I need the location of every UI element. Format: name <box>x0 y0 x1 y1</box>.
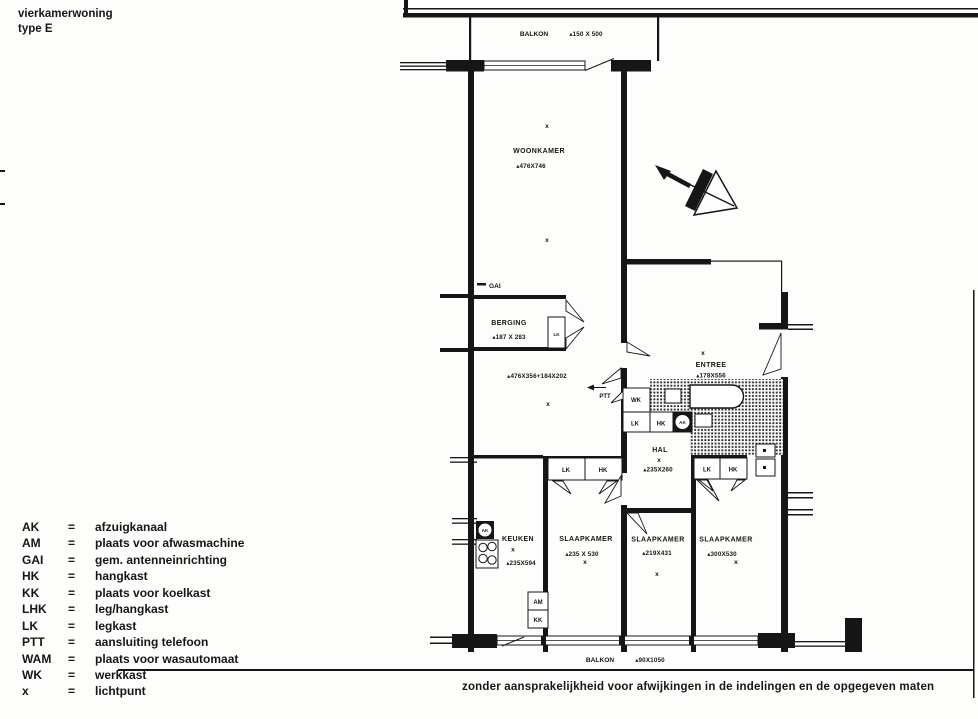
lightpoint-keuken: x <box>511 547 515 554</box>
label-ptt: PTT <box>599 394 611 400</box>
lightpoint-slaapkamer2: x <box>655 571 659 578</box>
door-entree-b <box>602 368 621 384</box>
label-slk1-lk: LK <box>562 468 571 474</box>
legend-abbr: WK <box>22 667 68 683</box>
legend-abbr: GAI <box>22 552 68 568</box>
dim-balkon-top: ▴150 X 500 <box>569 31 603 38</box>
label-hal-lk: LK <box>703 468 712 474</box>
label-am: AM <box>533 600 542 606</box>
door-berging-1 <box>566 300 584 322</box>
dim-berging: ▴187 X 283 <box>492 334 526 341</box>
legend-desc: leg/hangkast <box>95 601 168 617</box>
legend-desc: aansluiting telefoon <box>95 634 208 650</box>
label-entree: ENTREE <box>696 362 727 369</box>
dim-hal: ▴235X260 <box>643 467 673 474</box>
label-ak-bath: AK <box>679 420 686 425</box>
burner-icon <box>488 542 496 550</box>
legend-abbr: WAM <box>22 651 68 667</box>
legend-desc: afzuigkanaal <box>95 519 167 535</box>
door-hal-slaapkamer2 <box>627 513 647 534</box>
label-keuken: KEUKEN <box>502 536 534 543</box>
legend-abbr: AK <box>22 519 68 535</box>
label-berging: BERGING <box>491 320 527 327</box>
label-slaapkamer3: SLAAPKAMER <box>699 537 752 544</box>
balcony-door-leaf <box>585 59 614 71</box>
dim-keuken: ▴235X594 <box>506 560 536 567</box>
legend-desc: plaats voor afwasmachine <box>95 535 244 551</box>
legend-abbr: HK <box>22 568 68 584</box>
toilet <box>665 389 681 403</box>
dim-woonkamer: ▴476X746 <box>516 163 546 170</box>
legend-abbr: LHK <box>22 601 68 617</box>
label-ak-kitchen: AK <box>482 528 489 533</box>
legend-row: GAI=gem. antenneinrichting <box>22 552 244 568</box>
label-hal-hk: HK <box>729 468 738 474</box>
legend-desc: legkast <box>95 618 136 634</box>
equals-sign: = <box>68 667 95 683</box>
label-entree-lk: LK <box>631 422 640 428</box>
label-gai: GAI <box>489 283 501 290</box>
burner-icon <box>479 554 487 562</box>
lightpoint-slaapkamer1: x <box>583 559 587 566</box>
dim-balkon-bottom: ▴90X1050 <box>635 657 665 664</box>
ptt-arrow-icon <box>587 385 594 391</box>
lightpoint-woonkamer-1: x <box>545 123 549 130</box>
label-balkon-bottom: BALKON <box>586 657 614 664</box>
legend-row: WAM=plaats voor wasautomaat <box>22 651 244 667</box>
door-closet-slk1-a <box>553 481 571 494</box>
fixtures <box>476 415 690 569</box>
lightpoint-woonkamer-2: x <box>545 237 549 244</box>
equals-sign: = <box>68 585 95 601</box>
lightpoint-woonkamer-3: x <box>546 401 550 408</box>
label-balkon-top: BALKON <box>520 31 548 38</box>
burner-icon <box>488 556 496 564</box>
dim-slaapkamer1: ▴235 X 530 <box>565 551 599 558</box>
label-entree-hk: HK <box>657 422 666 428</box>
door-front-entrance <box>763 333 781 375</box>
legend-desc: hangkast <box>95 568 148 584</box>
dim-entree: ▴178X556 <box>696 373 726 380</box>
legend-abbr: KK <box>22 585 68 601</box>
label-slaapkamer2: SLAAPKAMER <box>631 537 684 544</box>
legend-row: AM=plaats voor afwasmachine <box>22 535 244 551</box>
equals-sign: = <box>68 618 95 634</box>
equals-sign: = <box>68 601 95 617</box>
washbasin <box>695 414 712 427</box>
lightpoint-slaapkamer3: x <box>734 559 738 566</box>
floorplan-page: vierkamerwoning type E <box>0 0 978 719</box>
dim-slaapkamer3: ▴300X530 <box>707 551 737 558</box>
label-kk: KK <box>534 618 543 624</box>
legend-row: HK=hangkast <box>22 568 244 584</box>
burner-icon <box>479 543 487 551</box>
equals-sign: = <box>68 519 95 535</box>
disclaimer: zonder aansprakelijkheid voor afwijkinge… <box>462 681 934 693</box>
legend-desc: lichtpunt <box>95 683 146 699</box>
legend-row: KK=plaats voor koelkast <box>22 585 244 601</box>
legend-row: x=lichtpunt <box>22 683 244 699</box>
equals-sign: = <box>68 535 95 551</box>
door-closet-hal-b <box>731 480 745 491</box>
legend-desc: werkkast <box>95 667 146 683</box>
label-berging-lk: LK <box>553 332 560 337</box>
equals-sign: = <box>68 683 95 699</box>
label-slk1-hk: HK <box>599 468 608 474</box>
legend-desc: plaats voor wasautomaat <box>95 651 238 667</box>
legend-abbr: LK <box>22 618 68 634</box>
label-hal: HAL <box>652 447 668 454</box>
legend: AK=afzuigkanaal AM=plaats voor afwasmach… <box>22 519 244 700</box>
legend-row: LHK=leg/hangkast <box>22 601 244 617</box>
legend-row: LK=legkast <box>22 618 244 634</box>
equals-sign: = <box>68 634 95 650</box>
legend-desc: plaats voor koelkast <box>95 585 210 601</box>
door-berging-2 <box>566 327 584 349</box>
legend-abbr: x <box>22 683 68 699</box>
legend-row: WK=werkkast <box>22 667 244 683</box>
label-woonkamer: WOONKAMER <box>513 148 565 155</box>
legend-abbr: PTT <box>22 634 68 650</box>
bathtub <box>690 385 744 408</box>
door-entree-a <box>627 342 650 356</box>
label-slaapkamer1: SLAAPKAMER <box>559 536 612 543</box>
lightpoint-hal: x <box>657 457 661 464</box>
dim-woonkamer-extra: ▴476X356+184X202 <box>507 373 567 380</box>
legend-abbr: AM <box>22 535 68 551</box>
legend-desc: gem. antenneinrichting <box>95 552 227 568</box>
lightpoint-entree: x <box>701 350 705 357</box>
north-arrow-icon <box>655 165 737 215</box>
legend-row: AK=afzuigkanaal <box>22 519 244 535</box>
equals-sign: = <box>68 568 95 584</box>
equals-sign: = <box>68 651 95 667</box>
equals-sign: = <box>68 552 95 568</box>
label-wk: WK <box>631 398 642 404</box>
legend-row: PTT=aansluiting telefoon <box>22 634 244 650</box>
dim-slaapkamer2: ▴219X431 <box>642 550 672 557</box>
